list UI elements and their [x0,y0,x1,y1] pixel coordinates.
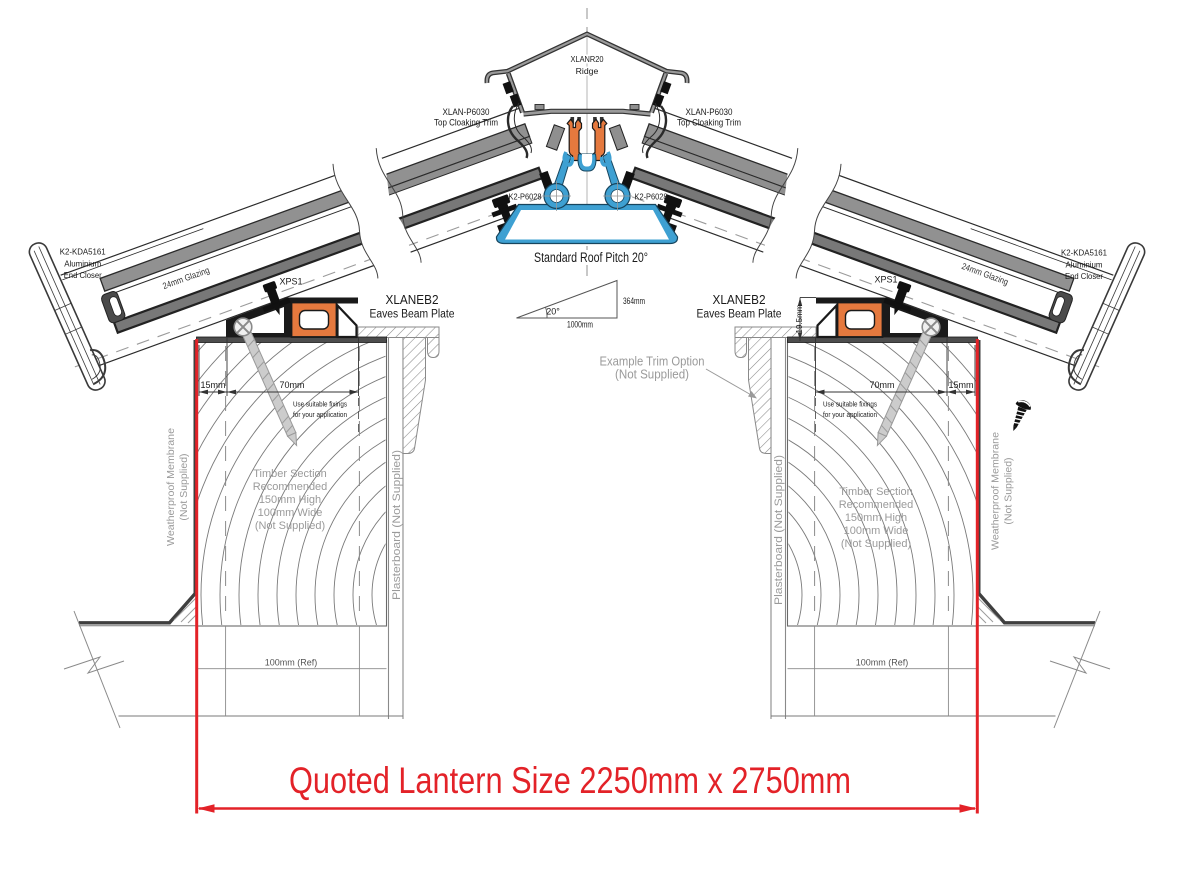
svg-text:(Not Supplied): (Not Supplied) [841,538,911,550]
svg-text:XLAN-P6030: XLAN-P6030 [686,107,733,117]
svg-text:XPS1: XPS1 [279,277,302,287]
svg-text:Weatherproof Membrane: Weatherproof Membrane [990,432,1002,550]
svg-text:150mm High: 150mm High [845,512,907,524]
svg-text:Timber Section: Timber Section [839,486,913,498]
svg-text:End Closer: End Closer [64,270,102,280]
svg-text:Aluminium: Aluminium [64,259,101,269]
svg-text:K2-KDA5161: K2-KDA5161 [1061,248,1107,258]
svg-text:19.5mm: 19.5mm [795,304,804,333]
svg-text:20°: 20° [546,307,560,317]
svg-text:Recommended: Recommended [839,499,914,511]
svg-text:70mm: 70mm [279,380,304,390]
svg-text:70mm: 70mm [869,380,894,390]
svg-text:Standard Roof Pitch 20°: Standard Roof Pitch 20° [534,250,648,265]
svg-text:End Closer: End Closer [1065,271,1103,281]
svg-text:K2-P6028: K2-P6028 [509,192,542,202]
svg-text:XPS1: XPS1 [874,275,897,285]
svg-text:Weatherproof Membrane: Weatherproof Membrane [165,428,177,546]
svg-text:Aluminium: Aluminium [1066,260,1103,270]
svg-text:100mm (Ref): 100mm (Ref) [265,658,318,668]
svg-text:(Not Supplied): (Not Supplied) [255,520,325,532]
svg-text:XLANEB2: XLANEB2 [386,292,439,307]
svg-text:XLANEB2: XLANEB2 [713,292,766,307]
svg-text:Timber Section: Timber Section [253,468,327,480]
svg-text:XLANR20: XLANR20 [571,54,604,64]
svg-text:Example Trim Option: Example Trim Option [600,355,705,369]
svg-text:Ridge: Ridge [576,66,599,76]
svg-text:Use suitable fixings: Use suitable fixings [823,400,877,409]
svg-text:15mm: 15mm [200,380,225,390]
svg-text:for your application: for your application [293,410,347,419]
svg-text:364mm: 364mm [623,296,645,306]
svg-text:100mm Wide: 100mm Wide [844,525,909,537]
svg-text:100mm Wide: 100mm Wide [258,507,323,519]
svg-text:15mm: 15mm [948,380,973,390]
svg-text:Eaves Beam Plate: Eaves Beam Plate [370,309,455,321]
svg-text:Use suitable fixings: Use suitable fixings [293,400,347,409]
svg-text:for your application: for your application [823,410,877,419]
svg-text:(Not Supplied): (Not Supplied) [1003,457,1015,524]
svg-text:1000mm: 1000mm [567,320,593,330]
svg-text:K2-P6028: K2-P6028 [635,192,668,202]
svg-text:Top Cloaking Trim: Top Cloaking Trim [434,118,498,128]
svg-text:Plasterboard (Not Supplied): Plasterboard (Not Supplied) [391,450,403,600]
svg-text:Quoted Lantern Size 2250mm x 2: Quoted Lantern Size 2250mm x 2750mm [289,760,851,801]
svg-text:Eaves Beam Plate: Eaves Beam Plate [697,309,782,321]
svg-text:Top Cloaking Trim: Top Cloaking Trim [677,118,741,128]
svg-text:(Not Supplied): (Not Supplied) [178,453,190,520]
svg-text:Recommended: Recommended [253,481,328,493]
svg-text:100mm (Ref): 100mm (Ref) [856,658,909,668]
svg-text:Plasterboard (Not Supplied): Plasterboard (Not Supplied) [773,455,785,605]
svg-text:XLAN-P6030: XLAN-P6030 [443,107,490,117]
svg-text:K2-KDA5161: K2-KDA5161 [60,247,106,257]
svg-text:150mm High: 150mm High [259,494,321,506]
svg-text:(Not Supplied): (Not Supplied) [615,368,689,382]
